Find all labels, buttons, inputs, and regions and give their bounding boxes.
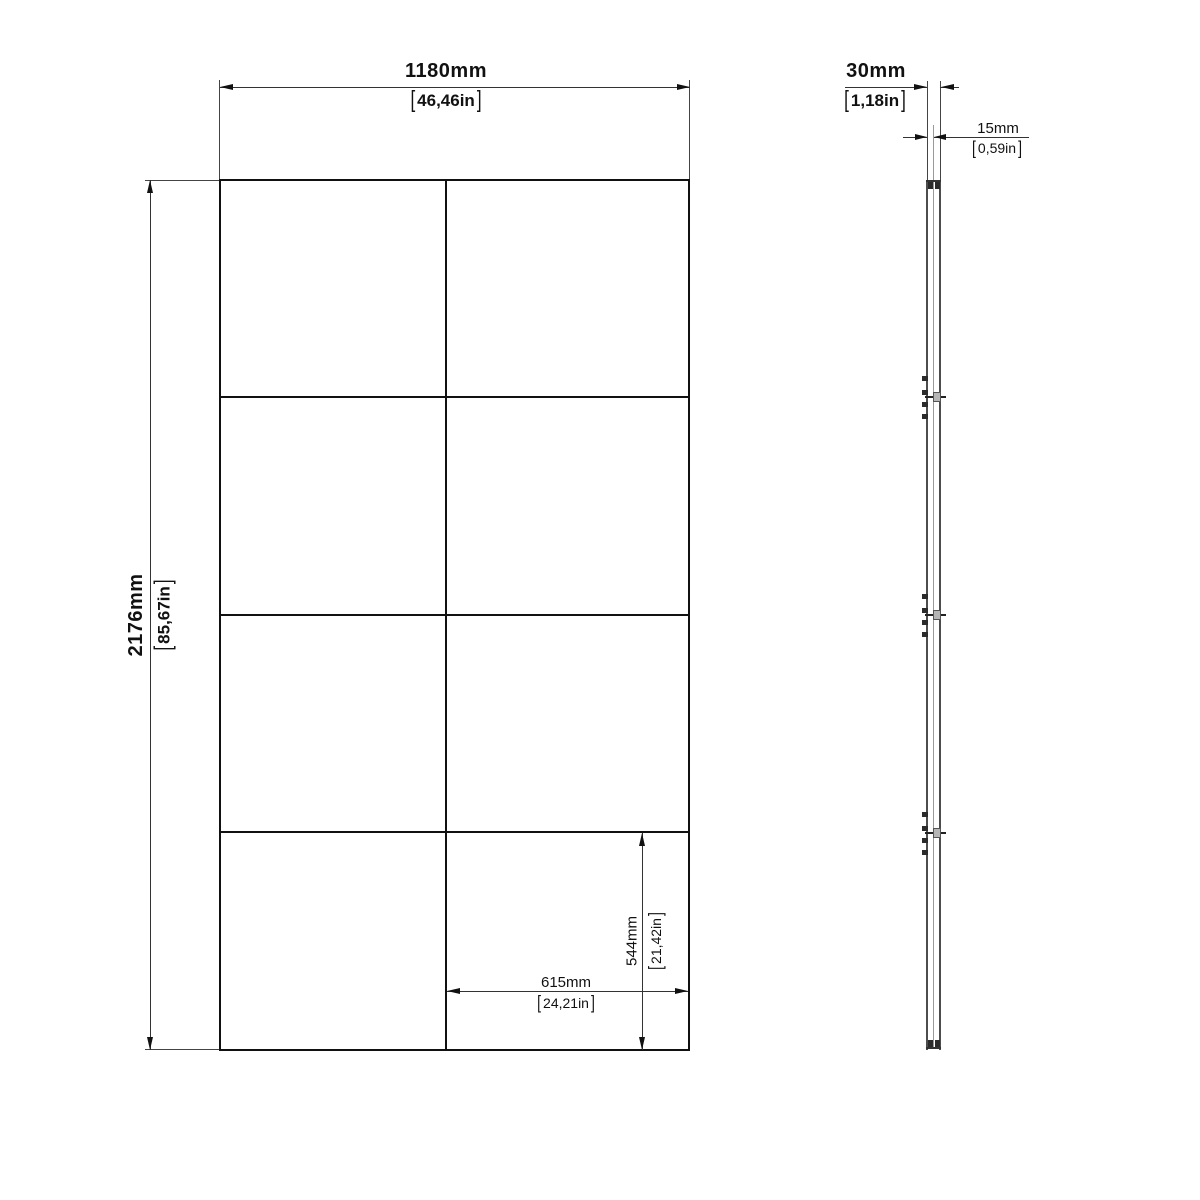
close-bracket: ]: [152, 577, 175, 586]
dim-arrow-down-icon: [147, 1037, 153, 1050]
screw-mark: [922, 376, 928, 381]
dimension-line: [220, 87, 690, 88]
technical-drawing-canvas: 1180mm [46,46in] 2176mm [85,67in]: [0, 0, 1200, 1200]
dim-arrow-right-icon: [914, 84, 927, 90]
width-mm-label: 1180mm: [405, 61, 487, 81]
half-thickness-mm-label: 15mm: [977, 121, 1019, 136]
dim-arrow-left-icon: [447, 988, 460, 994]
screw-mark: [922, 402, 928, 407]
screw-mark: [922, 812, 928, 817]
screw-mark: [922, 414, 928, 419]
profile-bottom-edge: [926, 1047, 941, 1049]
height-in-label: [85,67in]: [156, 577, 173, 652]
fitting-block: [933, 828, 941, 838]
cell-height-mm-label: 544mm: [625, 916, 640, 966]
profile-mid-line: [933, 125, 934, 1049]
open-bracket: [: [408, 88, 417, 111]
close-bracket: ]: [589, 993, 597, 1012]
close-bracket: ]: [475, 88, 484, 111]
cell-width-mm-label: 615mm: [541, 975, 591, 990]
extension-line: [219, 80, 220, 179]
dimension-line: [642, 833, 643, 1050]
screw-mark: [922, 594, 928, 599]
height-mm-label: 2176mm: [126, 573, 146, 656]
close-bracket: ]: [899, 88, 908, 111]
dim-arrow-down-icon: [639, 1037, 645, 1050]
shelf-line-1: [221, 396, 688, 398]
dim-arrow-left-icon: [934, 134, 946, 140]
shelf-line-3: [221, 831, 688, 833]
screw-mark: [922, 850, 928, 855]
dowel-mark: [935, 1040, 940, 1047]
open-bracket: [: [842, 88, 851, 111]
screw-mark: [922, 838, 928, 843]
thickness-in-label: [1,18in]: [842, 92, 908, 109]
thickness-mm-label: 30mm: [846, 61, 906, 81]
open-bracket: [: [152, 644, 175, 653]
dimension-line: [447, 991, 688, 992]
dim-arrow-right-icon: [677, 84, 690, 90]
screw-mark: [922, 608, 928, 613]
dowel-mark: [928, 1040, 933, 1047]
extension-line: [145, 1049, 219, 1050]
cell-width-in-label: [24,21in]: [535, 996, 597, 1010]
dim-arrow-up-icon: [147, 180, 153, 193]
open-bracket: [: [970, 138, 978, 157]
dim-arrow-right-icon: [675, 988, 688, 994]
dim-arrow-left-icon: [941, 84, 954, 90]
half-thickness-in-label: [0,59in]: [970, 141, 1024, 155]
dim-arrow-right-icon: [915, 134, 927, 140]
cell-height-in-label: [21,42in]: [649, 910, 663, 972]
close-bracket: ]: [646, 910, 665, 918]
screw-mark: [922, 632, 928, 637]
width-in-label: [46,46in]: [408, 92, 483, 109]
dowel-mark: [935, 182, 940, 189]
open-bracket: [: [535, 993, 543, 1012]
extension-line: [940, 81, 941, 181]
fitting-block: [933, 392, 941, 402]
close-bracket: ]: [1016, 138, 1024, 157]
extension-line: [927, 81, 928, 181]
screw-mark: [922, 620, 928, 625]
screw-mark: [922, 826, 928, 831]
fitting-block: [933, 610, 941, 620]
dim-arrow-up-icon: [639, 833, 645, 846]
open-bracket: [: [646, 964, 665, 972]
dimension-line: [150, 180, 151, 1050]
dim-arrow-left-icon: [220, 84, 233, 90]
extension-line: [145, 180, 219, 181]
screw-mark: [922, 390, 928, 395]
shelf-line-2: [221, 614, 688, 616]
dowel-mark: [928, 182, 933, 189]
dimension-line: [934, 137, 1029, 138]
extension-line: [689, 80, 690, 179]
